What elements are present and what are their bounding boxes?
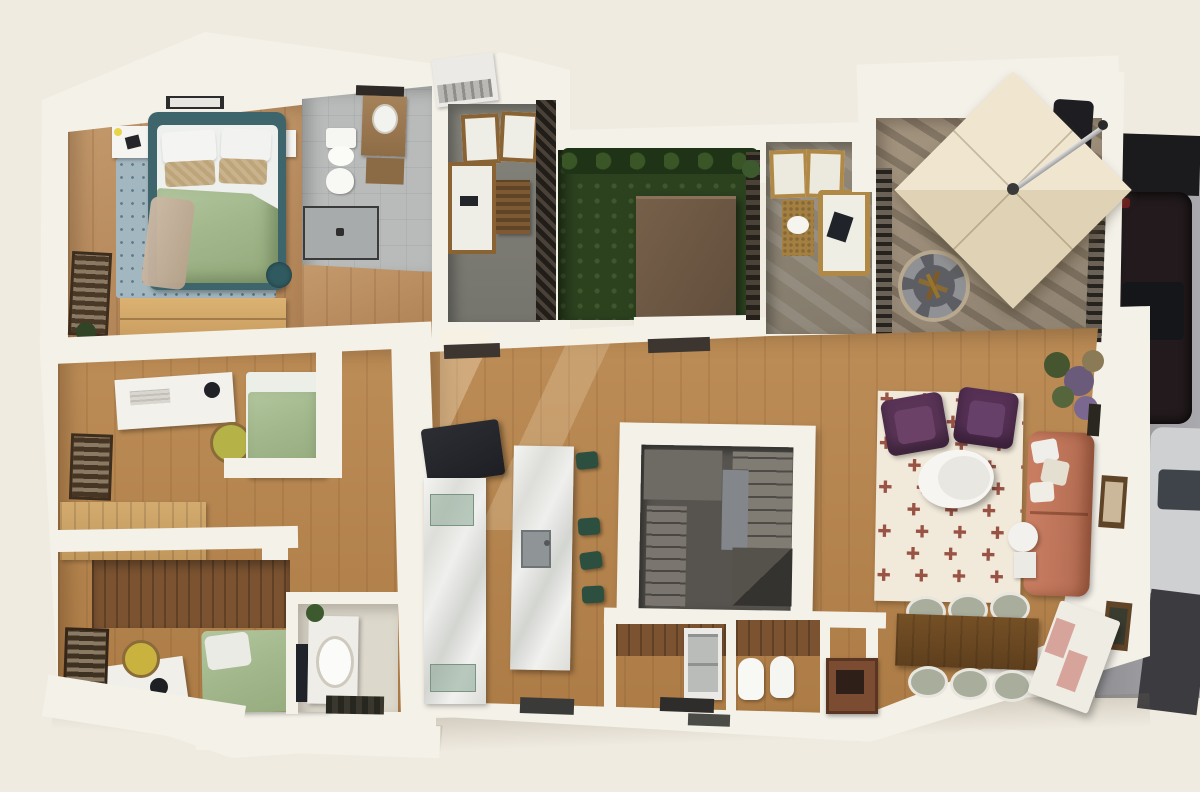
patio-chair-2 [499, 111, 540, 163]
toilet [326, 128, 356, 148]
stair-lower-diagonal [731, 547, 792, 606]
deck-railing-left [876, 168, 892, 336]
bathroom2-shower-mat [326, 695, 384, 714]
lounge-corner-column [852, 140, 878, 192]
wall-frame-mid-art [1103, 481, 1124, 522]
wall-bedroom2-bottom [224, 458, 342, 478]
master-foot-chest-seam [120, 318, 286, 320]
utility-cabinet-doors [688, 634, 718, 692]
trellis-screen [536, 100, 556, 320]
umbrella-hub [1007, 183, 1019, 195]
dining-table [895, 614, 1039, 671]
bar-stool-3 [579, 551, 603, 571]
stair-flight-left [645, 506, 687, 607]
kitchen-counter-glass-shelf [430, 494, 474, 526]
fridge [420, 419, 505, 485]
nightstand-left-lamp [114, 128, 122, 136]
bar-stool-1 [575, 451, 599, 470]
side-table-round [1008, 522, 1038, 552]
master-pillow-white-right [220, 128, 272, 162]
utility-floor-mat [660, 697, 714, 713]
plant-cluster-4 [1052, 386, 1074, 408]
umbrella-finial [1098, 120, 1108, 130]
bedroom2-desk-papers [130, 389, 171, 406]
hedge-row [562, 148, 758, 174]
toilet-bowl [328, 146, 354, 166]
wc-toilet [738, 658, 764, 700]
wc-bidet [770, 656, 794, 698]
courtyard-ledge [634, 315, 748, 337]
bathroom2-mirror [296, 644, 308, 702]
sofa-pillow-3 [1029, 481, 1054, 503]
patio-chair-1 [461, 113, 502, 165]
bar-stool-2 [577, 517, 600, 535]
fireplace-opening [836, 670, 864, 694]
bedroom2-desk-lamp [204, 382, 220, 398]
patio-bench [448, 162, 496, 254]
slat-coffee-table [496, 180, 530, 234]
car-light-glass [1157, 469, 1200, 511]
master-pillow-tan-left [164, 160, 215, 188]
bedroom3-chair [122, 640, 160, 678]
living-window-1 [444, 343, 500, 359]
dining-chair-5 [950, 668, 990, 700]
island-sink [521, 530, 551, 568]
kitchen-counter-green-unit [430, 664, 476, 692]
wall-bottomrooms-v1 [604, 614, 616, 718]
side-table-lower [1014, 552, 1036, 578]
stair-landing [644, 449, 723, 500]
bedroom3-closet-wall [92, 560, 290, 628]
island-faucet [544, 540, 550, 546]
rattan-chair-1 [769, 149, 809, 198]
bedroom2-window [69, 433, 113, 500]
wall-bottomrooms-v2 [726, 618, 736, 718]
bedroom3-pillow [204, 631, 252, 671]
bidet [326, 168, 354, 194]
master-pouf [266, 262, 292, 288]
bathroom2-sink [316, 636, 354, 688]
armchair-purple-1-seat [893, 405, 936, 445]
master-pillow-tan-right [219, 158, 268, 185]
wc-room-wood-wall [736, 620, 820, 656]
patio-bench-tray [460, 196, 478, 206]
coffee-table-tier [938, 456, 990, 500]
bathroom2-plant [306, 604, 324, 622]
door-mat-1 [520, 697, 575, 715]
rattan-table-top [787, 216, 809, 234]
bathroom-shelf [366, 157, 405, 184]
stair-mid-ramp [721, 470, 748, 550]
wall-art-canvas [170, 98, 220, 107]
bathroom-sink [372, 104, 398, 134]
floor-plan-render: ✚ ✚ ✚ ✚ ✚ ✚ ✚ ✚ ✚ ✚ ✚ ✚ ✚ ✚ ✚ ✚ ✚ ✚ ✚ ✚ … [0, 0, 1200, 792]
living-window-2 [648, 337, 710, 353]
plant-cluster-3 [1082, 350, 1104, 372]
master-pillow-white-left [161, 129, 217, 164]
parked-car-light [1145, 427, 1200, 597]
armchair-purple-2-seat [966, 400, 1006, 439]
bar-stool-4 [582, 585, 605, 603]
shower-drain [336, 228, 344, 236]
dining-chair-6 [992, 670, 1032, 702]
divider-plant [742, 160, 760, 178]
wall-frame-small [1087, 404, 1101, 437]
door-mat-2 [688, 713, 730, 726]
courtyard-canopy-structure [636, 196, 736, 321]
dining-chair-4 [908, 666, 948, 698]
